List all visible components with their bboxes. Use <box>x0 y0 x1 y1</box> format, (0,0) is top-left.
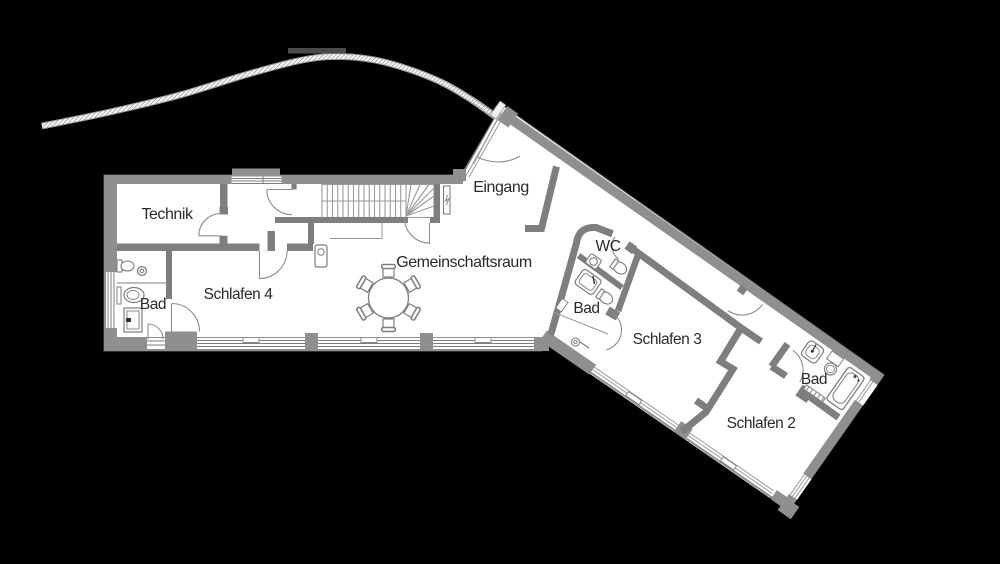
svg-text:Technik: Technik <box>141 206 194 223</box>
svg-text:Eingang: Eingang <box>473 179 529 196</box>
svg-text:Schlafen 3: Schlafen 3 <box>633 331 702 348</box>
svg-text:WC: WC <box>596 238 621 255</box>
svg-text:Bad: Bad <box>801 371 827 388</box>
svg-text:Schlafen 4: Schlafen 4 <box>204 286 274 303</box>
svg-text:Gemeinschaftsraum: Gemeinschaftsraum <box>396 254 532 271</box>
svg-text:Bad: Bad <box>573 300 599 317</box>
svg-text:Schlafen 2: Schlafen 2 <box>727 415 796 432</box>
svg-text:Bad: Bad <box>140 296 166 313</box>
